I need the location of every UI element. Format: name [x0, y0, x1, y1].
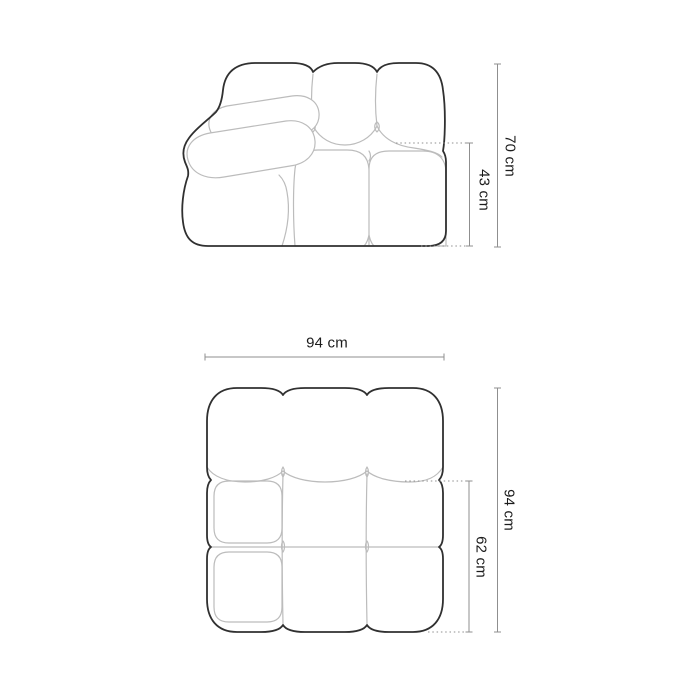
front-view-drawing [182, 63, 446, 246]
dimension-label-front-height-seat: 43 cm [476, 169, 493, 211]
dimension-diagram: 70 cm 43 cm 94 cm 94 cm 62 cm [0, 0, 700, 700]
dimension-label-top-width: 94 cm [306, 335, 348, 352]
top-inner-lines [207, 467, 443, 624]
dimension-line-front-height-total [494, 64, 501, 247]
front-seat-cushions [294, 150, 447, 246]
front-armrest-base-line [279, 175, 288, 246]
dimension-label-top-depth-seat: 62 cm [473, 536, 490, 578]
top-outer-contour [207, 388, 443, 632]
dimension-label-top-depth-total: 94 cm [501, 489, 518, 531]
dimension-line-top-width [205, 354, 444, 361]
dimension-line-top-depth-seat [405, 481, 473, 632]
diagram-canvas [0, 0, 700, 700]
top-view-drawing [207, 388, 443, 632]
dimension-label-front-height-total: 70 cm [502, 135, 519, 177]
